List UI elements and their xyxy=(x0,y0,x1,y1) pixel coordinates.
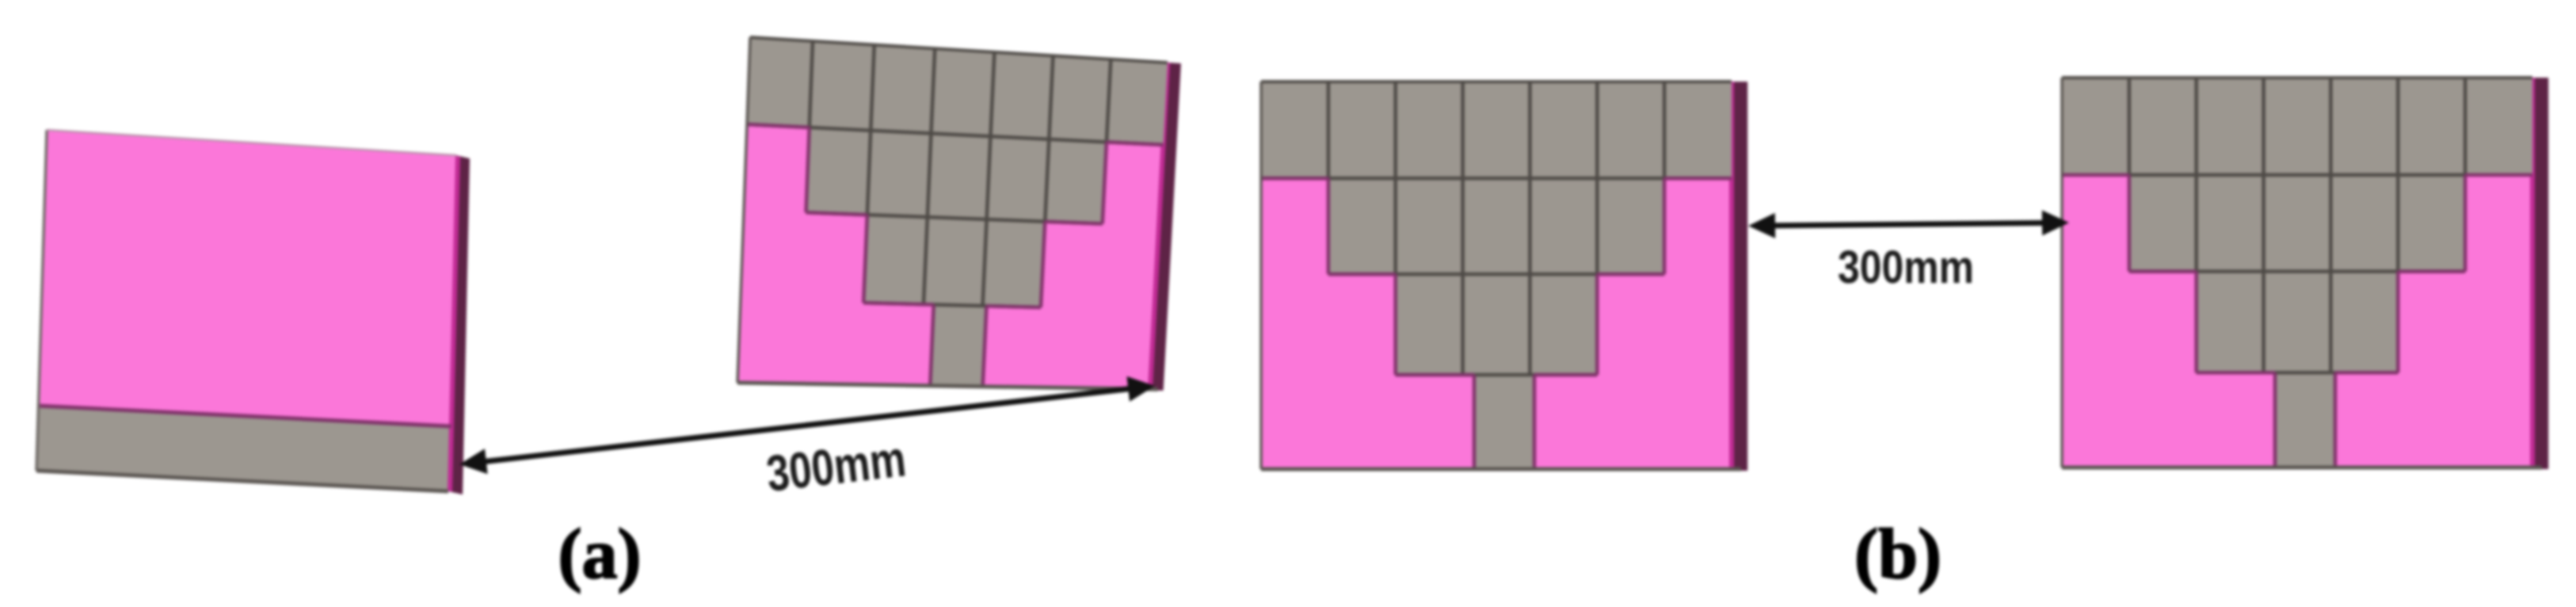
svg-text:(b): (b) xyxy=(1854,515,1942,594)
svg-text:(a): (a) xyxy=(558,515,642,594)
svg-text:300mm: 300mm xyxy=(1838,242,1974,293)
